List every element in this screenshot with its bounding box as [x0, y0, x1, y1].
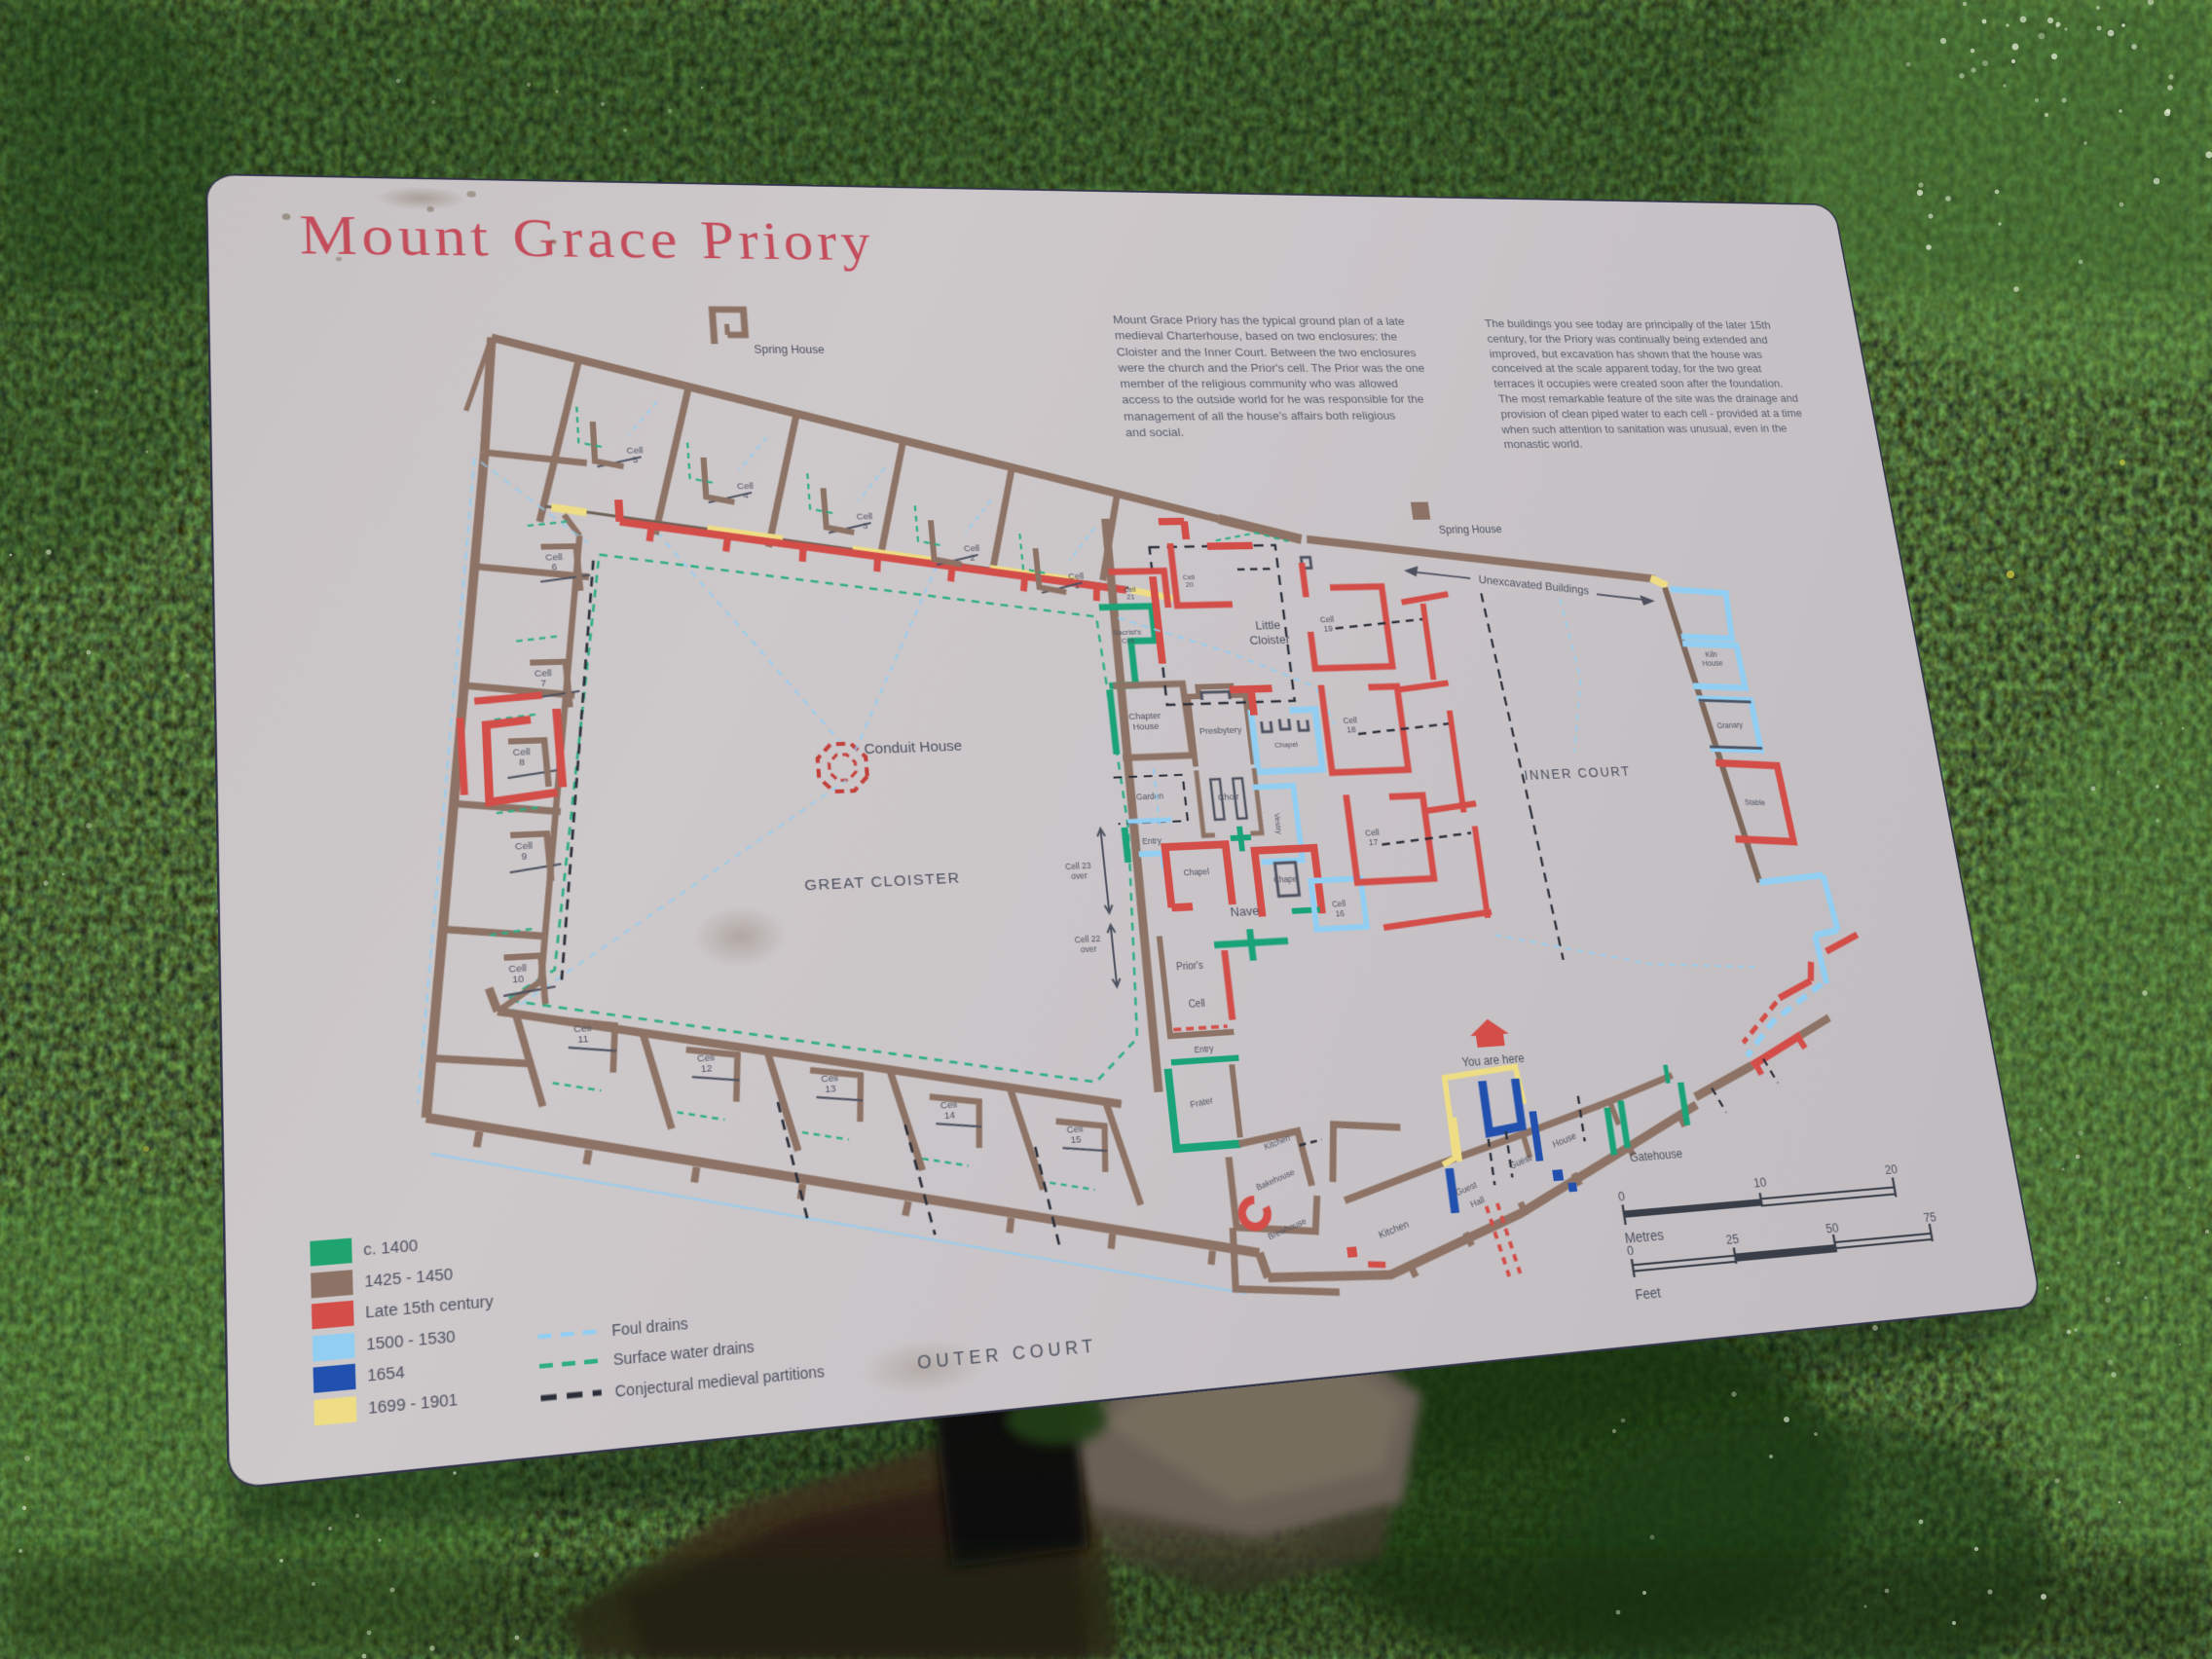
svg-text:Cell19: Cell19 [1319, 615, 1336, 634]
svg-text:Presbytery: Presbytery [1198, 725, 1242, 737]
svg-text:Cell12: Cell12 [697, 1052, 716, 1076]
svg-text:Cell11: Cell11 [573, 1023, 592, 1047]
svg-text:Chapel: Chapel [1183, 866, 1209, 877]
svg-text:Prior's: Prior's [1176, 961, 1204, 974]
svg-text:Cell4: Cell4 [737, 482, 755, 501]
svg-text:1654: 1654 [367, 1364, 405, 1385]
svg-text:Cell13: Cell13 [821, 1073, 839, 1096]
svg-text:Gatehouse: Gatehouse [1629, 1147, 1683, 1164]
svg-text:Late 15th century: Late 15th century [365, 1293, 495, 1322]
svg-text:Conjectural medieval partition: Conjectural medieval partitions [614, 1364, 825, 1402]
svg-text:Granary: Granary [1716, 720, 1744, 730]
svg-text:Guest: Guest [1508, 1153, 1533, 1172]
svg-text:0: 0 [1617, 1189, 1626, 1204]
svg-text:50: 50 [1825, 1220, 1839, 1235]
svg-text:Cell 22over: Cell 22over [1074, 934, 1102, 955]
svg-text:Cell1: Cell1 [1068, 571, 1086, 591]
svg-text:Vestry: Vestry [1272, 813, 1283, 835]
svg-text:Cell2: Cell2 [964, 544, 981, 564]
svg-text:Frater: Frater [1189, 1095, 1214, 1110]
svg-text:Nave: Nave [1230, 903, 1260, 919]
svg-text:Stable: Stable [1744, 797, 1765, 807]
svg-text:c. 1400: c. 1400 [363, 1237, 418, 1260]
svg-text:Cell5: Cell5 [626, 446, 644, 465]
svg-text:1425 - 1450: 1425 - 1450 [364, 1267, 454, 1292]
svg-text:Cell17: Cell17 [1364, 828, 1381, 847]
svg-text:Cell20: Cell20 [1182, 573, 1196, 589]
svg-text:Entry: Entry [1194, 1044, 1214, 1054]
svg-text:OUTER COURT: OUTER COURT [916, 1335, 1098, 1374]
svg-text:Garden: Garden [1136, 792, 1164, 802]
svg-text:Kitchen: Kitchen [1378, 1219, 1412, 1241]
svg-text:Cell18: Cell18 [1343, 716, 1359, 734]
svg-text:INNER COURT: INNER COURT [1524, 764, 1632, 783]
svg-text:Guest: Guest [1455, 1179, 1479, 1198]
svg-text:Cell9: Cell9 [515, 840, 534, 863]
svg-text:Cell8: Cell8 [512, 747, 531, 768]
svg-text:25: 25 [1725, 1232, 1741, 1247]
svg-text:Cell21: Cell21 [1124, 585, 1137, 601]
svg-text:Foul drains: Foul drains [611, 1316, 688, 1341]
svg-text:Cell14: Cell14 [940, 1099, 958, 1122]
svg-text:Cell 23over: Cell 23over [1065, 861, 1093, 881]
svg-text:GREAT CLOISTER: GREAT CLOISTER [804, 870, 962, 895]
svg-text:LittleCloister: LittleCloister [1247, 618, 1291, 647]
svg-text:1500 - 1530: 1500 - 1530 [366, 1329, 456, 1355]
svg-text:1699 - 1901: 1699 - 1901 [368, 1391, 459, 1418]
svg-text:Surface water drains: Surface water drains [612, 1339, 755, 1369]
svg-text:10: 10 [1752, 1175, 1767, 1191]
svg-text:Entry: Entry [1142, 835, 1162, 846]
svg-text:Cell7: Cell7 [535, 668, 553, 689]
svg-text:Spring House: Spring House [754, 344, 825, 356]
svg-text:Chapel: Chapel [1273, 874, 1300, 885]
svg-text:ChapterHouse: ChapterHouse [1128, 711, 1163, 732]
svg-text:House: House [1551, 1130, 1578, 1150]
svg-text:Conduit House: Conduit House [864, 738, 963, 757]
svg-text:Feet: Feet [1635, 1285, 1663, 1304]
svg-text:Bakehouse: Bakehouse [1255, 1166, 1297, 1193]
svg-text:Choir: Choir [1217, 792, 1240, 802]
svg-text:75: 75 [1923, 1209, 1937, 1225]
svg-text:Cell16: Cell16 [1332, 899, 1347, 918]
svg-text:Unexcavated Buildings: Unexcavated Buildings [1479, 572, 1590, 597]
svg-text:KilnHouse: KilnHouse [1700, 649, 1723, 668]
svg-text:Cell: Cell [1188, 999, 1205, 1011]
svg-text:20: 20 [1884, 1161, 1899, 1177]
svg-text:Chapel: Chapel [1274, 740, 1299, 749]
svg-text:Cell15: Cell15 [1066, 1124, 1085, 1146]
svg-text:Hall: Hall [1469, 1195, 1487, 1209]
svg-text:Cell10: Cell10 [508, 963, 527, 986]
svg-text:Spring House: Spring House [1438, 523, 1502, 535]
svg-text:Cell3: Cell3 [856, 512, 873, 532]
